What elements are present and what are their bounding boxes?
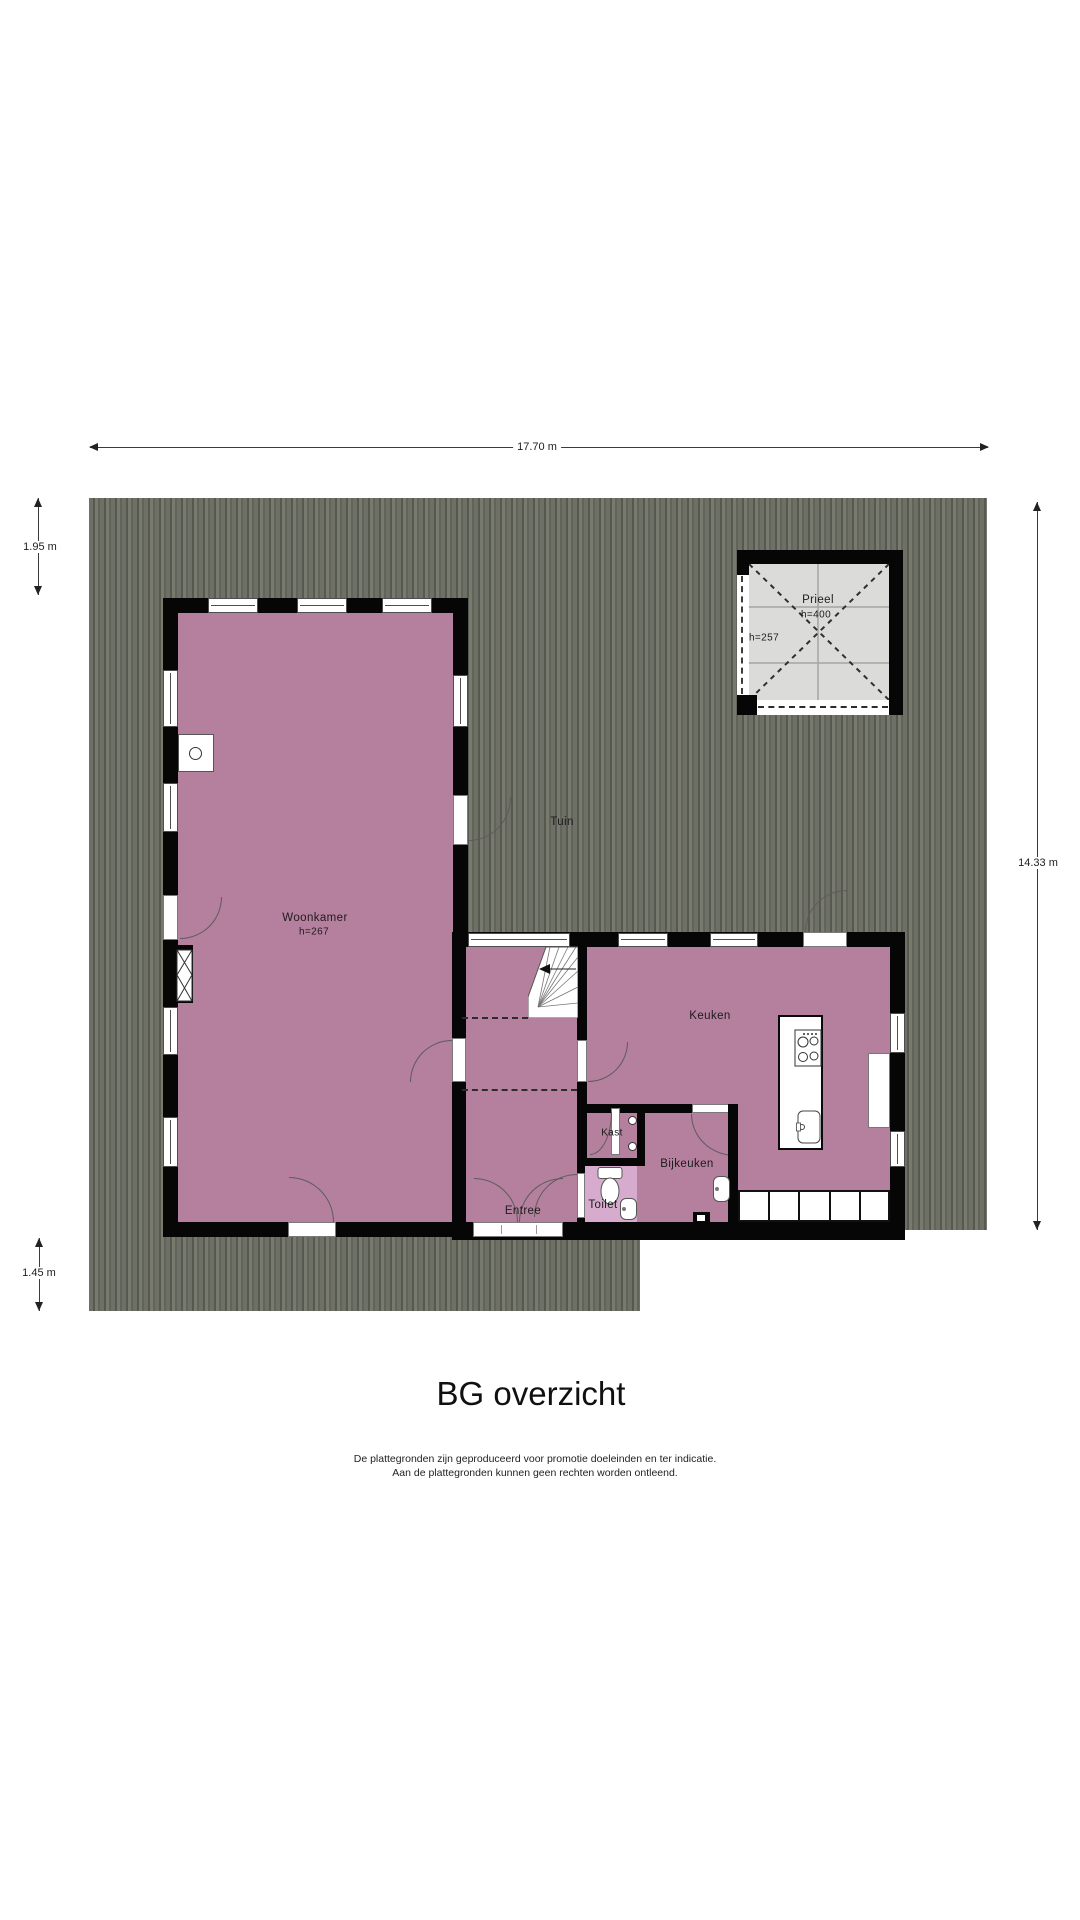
woonkamer-hall-door: [452, 1038, 466, 1082]
window: [163, 1007, 178, 1055]
dimension-left-upper-label: 1.95 m: [19, 541, 61, 553]
kast-right-wall: [637, 1104, 645, 1166]
window: [163, 1117, 178, 1167]
dimension-arrow: [35, 1302, 43, 1311]
window: [297, 598, 347, 613]
page-title: BG overzicht: [437, 1375, 626, 1413]
dimension-arrow: [34, 586, 42, 595]
toilet-label: Toilet: [588, 1199, 617, 1211]
kitchen-counter-right: [868, 1053, 890, 1128]
window: [890, 1131, 905, 1167]
prieel-post-top-left: [737, 564, 749, 575]
dimension-width-label: 17.70 m: [513, 441, 561, 453]
window: [382, 598, 432, 613]
cooktop-icon: [795, 1030, 821, 1066]
prieel-structure: Prieel h=400 h=257: [737, 550, 903, 715]
disclaimer-line-2: Aan de plattegronden kunnen geen rechten…: [354, 1466, 717, 1480]
window: [710, 933, 758, 947]
dimension-arrow: [980, 443, 989, 451]
chimney-flue-icon: [176, 949, 193, 1002]
kitchen-island: [778, 1015, 823, 1150]
disclaimer: De plattegronden zijn geproduceerd voor …: [354, 1452, 717, 1480]
toilet-door: [577, 1173, 585, 1218]
dashed-line: [462, 1089, 577, 1091]
entree-label: Entree: [505, 1205, 541, 1217]
stove-flue-circle: [189, 747, 202, 760]
woonkamer-height-label: h=267: [299, 927, 329, 938]
window: [618, 933, 668, 947]
entree-front-door: [473, 1222, 563, 1237]
prieel-label: Prieel: [802, 594, 834, 606]
dimension-arrow: [35, 1238, 43, 1247]
cabinet-divider: [829, 1192, 831, 1220]
garden-label: Tuin: [550, 816, 574, 828]
prieel-height-label: h=400: [801, 610, 831, 621]
dimension-arrow: [1033, 1221, 1041, 1230]
sink-tap-icon: [622, 1207, 626, 1211]
dimension-height-label: 14.33 m: [1014, 857, 1062, 869]
toilet-top-wall: [577, 1158, 645, 1166]
keuken-label: Keuken: [689, 1010, 730, 1022]
staircase: [528, 945, 578, 1018]
cabinet-divider: [768, 1192, 770, 1220]
window: [890, 1013, 905, 1053]
window: [453, 675, 468, 727]
door: [163, 895, 178, 940]
prieel-height2-label: h=257: [749, 633, 779, 644]
sink-tap-icon: [715, 1187, 719, 1191]
cabinet-divider: [859, 1192, 861, 1220]
dimension-arrow: [89, 443, 98, 451]
hall-kitchen-door: [577, 1040, 587, 1082]
kast-label: Kast: [601, 1128, 623, 1139]
floor-plan-canvas: Tuin Prieel h=400 h=257: [0, 0, 1080, 1920]
window: [208, 598, 258, 613]
dimension-arrow: [1033, 502, 1041, 511]
prieel-open-side-left: [737, 575, 749, 695]
bijkeuken-right-wall: [728, 1104, 738, 1222]
disclaimer-line-1: De plattegronden zijn geproduceerd voor …: [354, 1452, 717, 1466]
column-stub-core: [697, 1215, 705, 1221]
dimension-arrow: [34, 498, 42, 507]
terrace-door: [288, 1222, 336, 1237]
cabinet-divider: [798, 1192, 800, 1220]
prieel-open-edge-left-line: [741, 576, 743, 694]
window: [163, 670, 178, 727]
prieel-wall-top: [737, 550, 903, 564]
meter-symbol: [628, 1142, 637, 1151]
garden-door: [453, 795, 468, 845]
dimension-left-lower-label: 1.45 m: [18, 1267, 60, 1279]
prieel-open-edge-bottom-line: [758, 706, 888, 708]
prieel-wall-right: [889, 564, 903, 715]
window: [163, 783, 178, 832]
kitchen-garden-door: [803, 932, 847, 947]
woonkamer-label: Woonkamer: [282, 912, 347, 924]
meter-symbol: [628, 1116, 637, 1125]
prieel-post-bottom-left: [737, 695, 757, 715]
kitchen-cabinet-row: [738, 1190, 890, 1222]
island-sink-icon: [798, 1111, 820, 1143]
bijkeuken-label: Bijkeuken: [660, 1158, 713, 1170]
dashed-line: [462, 1017, 528, 1019]
